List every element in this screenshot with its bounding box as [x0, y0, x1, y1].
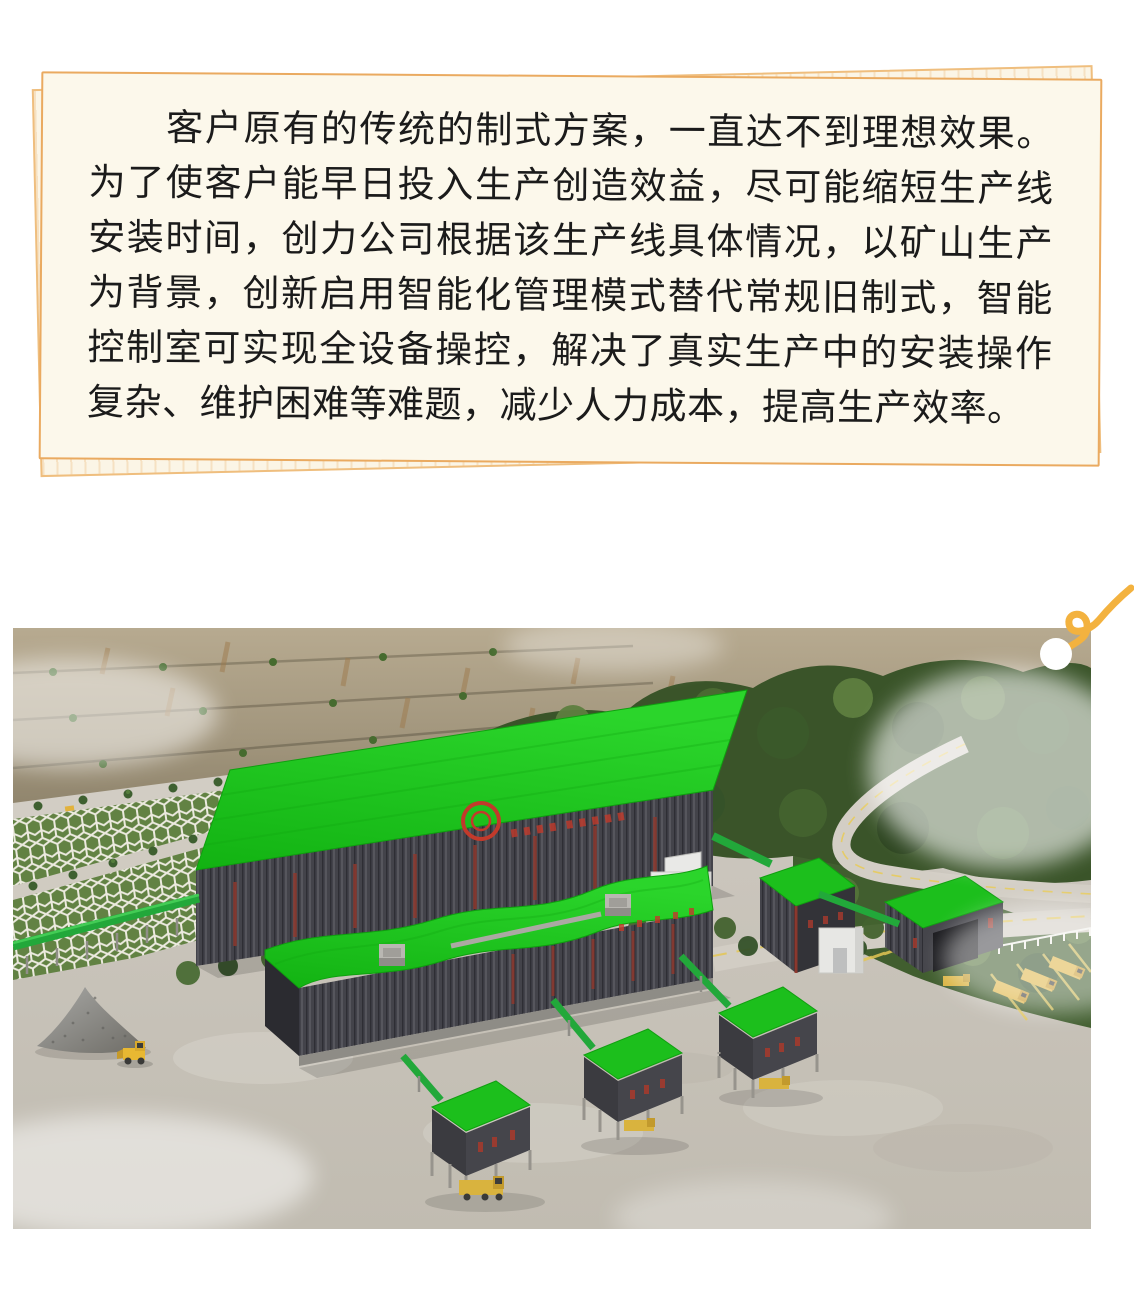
plant-render-figure — [13, 628, 1091, 1229]
intro-card: 客户原有的传统的制式方案，一直达不到理想效果。为了使客户能早日投入生产创造效益，… — [40, 75, 1101, 463]
plant-render-image — [13, 628, 1091, 1229]
card-front-sheet: 客户原有的传统的制式方案，一直达不到理想效果。为了使客户能早日投入生产创造效益，… — [39, 71, 1103, 466]
pin-dot-icon — [1040, 638, 1072, 670]
intro-paragraph: 客户原有的传统的制式方案，一直达不到理想效果。为了使客户能早日投入生产创造效益，… — [87, 100, 1054, 437]
article-page: 客户原有的传统的制式方案，一直达不到理想效果。为了使客户能早日投入生产创造效益，… — [0, 0, 1134, 1313]
pin-decoration — [1001, 580, 1134, 712]
auxiliary-structure — [819, 928, 863, 973]
